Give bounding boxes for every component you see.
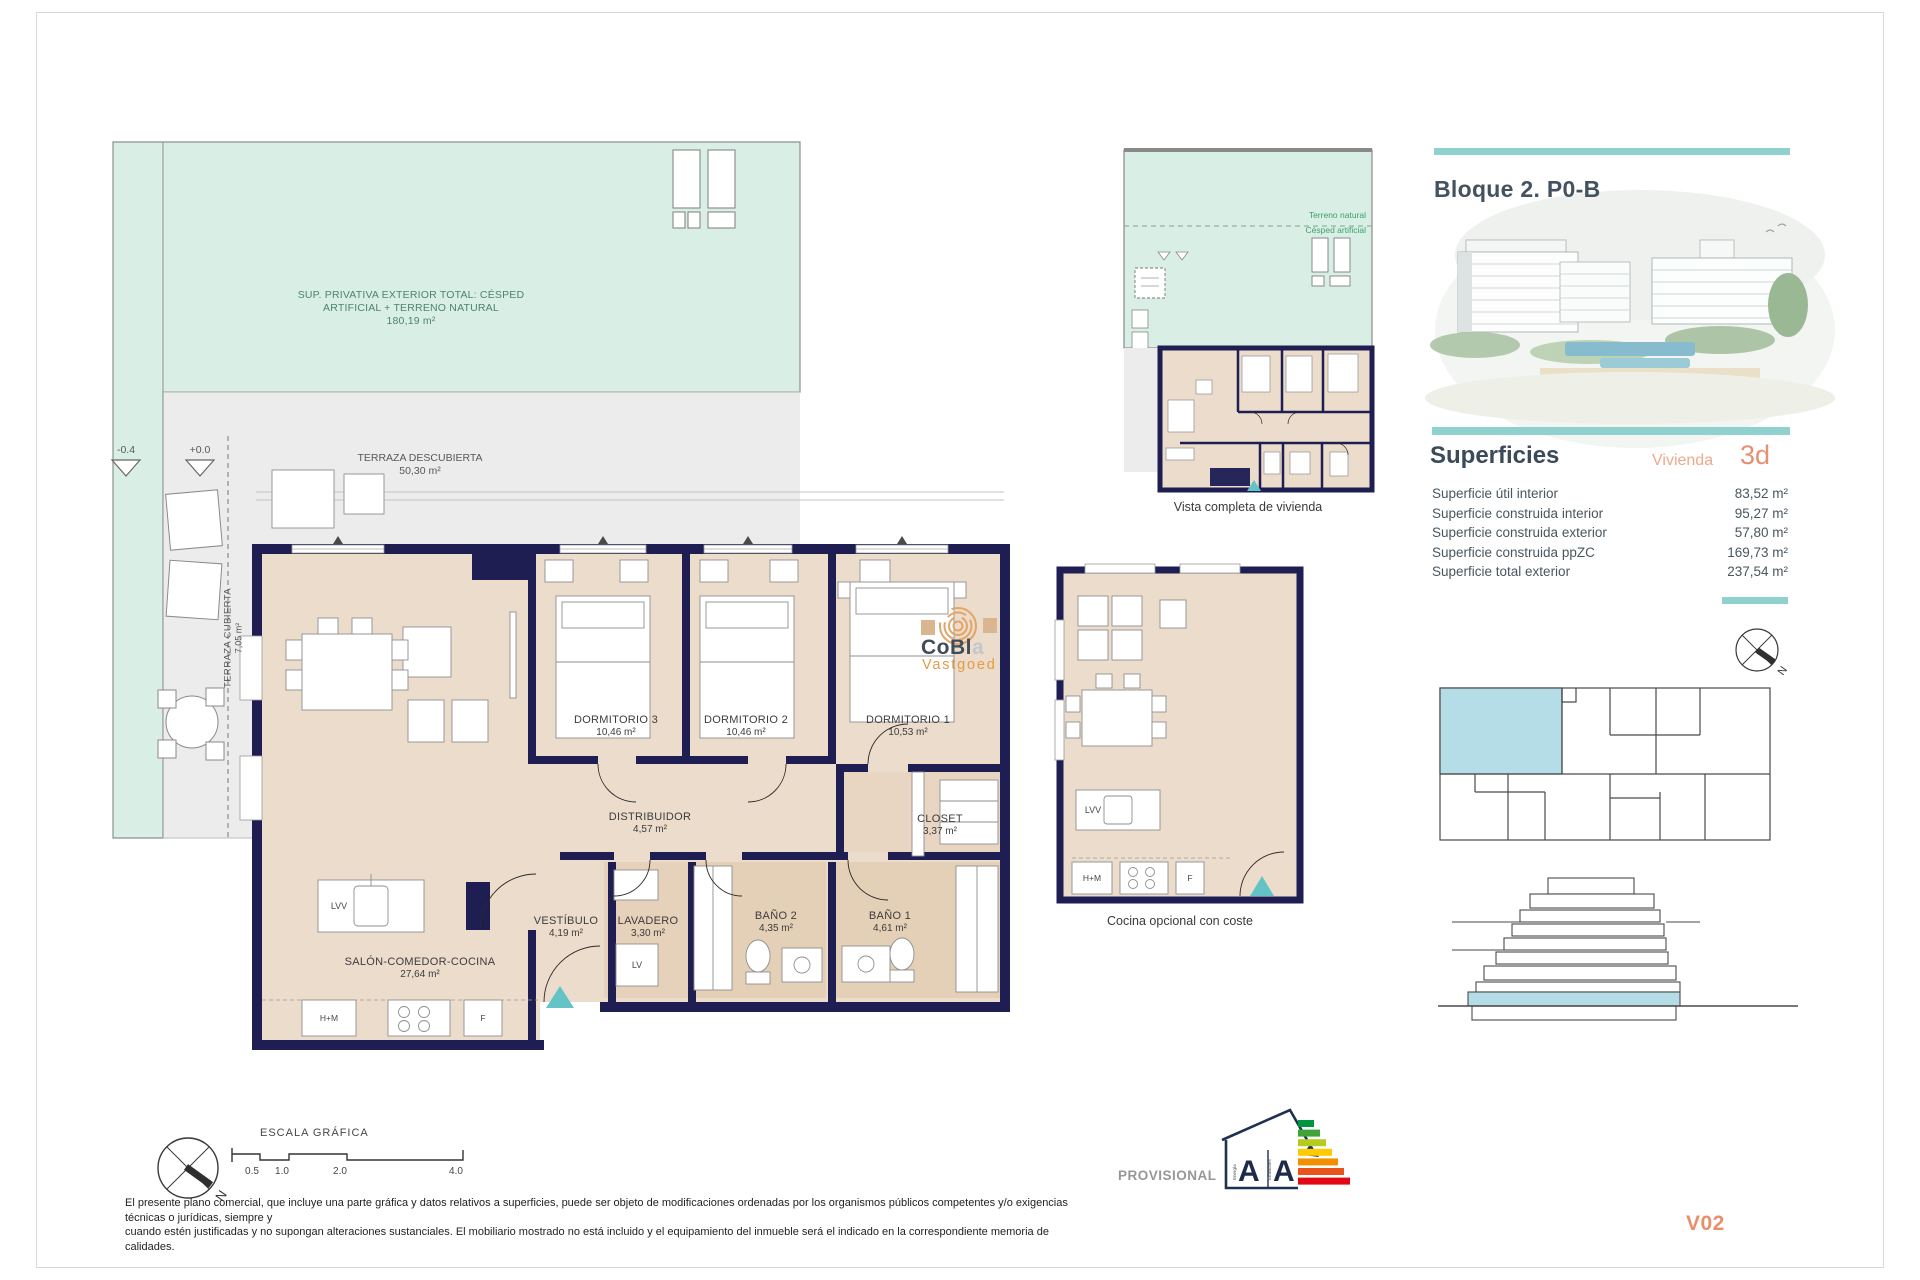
scale-bar-title: ESCALA GRÁFICA <box>260 1127 369 1139</box>
level-marker-low: -0.4 <box>117 444 135 456</box>
scale-tick: 1.0 <box>275 1166 289 1177</box>
watermark-subtitle: Vastgoed <box>922 657 997 673</box>
energy-caption-left: Energía <box>1232 1164 1237 1180</box>
dishwasher-label: LVV <box>331 901 347 911</box>
kitchen-option-plan <box>1055 564 1300 900</box>
room-label-distribuidor: DISTRIBUIDOR4,57 m² <box>609 811 691 835</box>
room-label-banyo-1: BAÑO 14,61 m² <box>869 910 911 934</box>
vivienda-value: 3d <box>1740 440 1770 471</box>
building-render-image <box>1425 190 1835 448</box>
table-row: Superficie construida exterior57,80 m² <box>1432 525 1788 545</box>
scale-tick: 0.5 <box>245 1166 259 1177</box>
superficies-title: Superficies <box>1430 442 1559 470</box>
compass-north-label: N <box>1776 664 1790 677</box>
room-label-closet: CLOSET3,37 m² <box>917 813 963 837</box>
room-label-dormitorio-3: DORMITORIO 310,46 m² <box>574 714 658 738</box>
oven-label-kitchen-plan: H+M <box>1083 873 1101 883</box>
teal-rule-superficies <box>1432 427 1790 435</box>
mini-overview-plan <box>1124 148 1372 491</box>
energy-scale-bars <box>1298 1120 1350 1185</box>
disclaimer-text: El presente plano comercial, que incluye… <box>125 1196 1083 1254</box>
kitchen-plan-caption: Cocina opcional con coste <box>1107 914 1253 928</box>
scale-tick: 4.0 <box>449 1166 463 1177</box>
building-section-diagram <box>1438 878 1798 1020</box>
exterior-surface-note: SUP. PRIVATIVA EXTERIOR TOTAL: CÉSPED AR… <box>298 289 525 328</box>
energy-letter-left: A <box>1238 1155 1260 1188</box>
dishwasher-label-kitchen-plan: LVV <box>1085 805 1101 815</box>
block-title: Bloque 2. P0-B <box>1434 176 1601 203</box>
teal-rule-top <box>1434 148 1790 155</box>
table-row: Superficie útil interior83,52 m² <box>1432 486 1788 506</box>
room-label-lavadero: LAVADERO3,30 m² <box>618 915 679 939</box>
superficies-table: Superficie útil interior83,52 m² Superfi… <box>1432 486 1788 584</box>
compass-icon-panel: N <box>1736 629 1790 678</box>
table-row: Superficie construida interior95,27 m² <box>1432 506 1788 526</box>
teal-rule-small <box>1722 597 1788 604</box>
mini-plan-caption: Vista completa de vivienda <box>1174 500 1322 514</box>
unit-location-diagram <box>1440 688 1770 840</box>
scale-tick: 2.0 <box>333 1166 347 1177</box>
energy-letter-right: A <box>1273 1155 1295 1188</box>
fridge-label-kitchen-plan: F <box>1187 873 1192 883</box>
energy-rating-icon: A A Energía Emisiones <box>1222 1110 1350 1188</box>
terreno-natural-label: Terreno natural <box>1288 210 1366 221</box>
oven-label: H+M <box>320 1013 338 1023</box>
table-row: Superficie construida ppZC169,73 m² <box>1432 545 1788 565</box>
energy-caption-right: Emisiones <box>1267 1158 1272 1180</box>
provisional-label: PROVISIONAL <box>1118 1168 1217 1183</box>
fridge-label: F <box>480 1013 485 1023</box>
scale-bar <box>232 1148 463 1162</box>
level-marker-zero: +0.0 <box>190 444 211 456</box>
vivienda-label: Vivienda <box>1652 452 1713 470</box>
room-label-salon: SALÓN-COMEDOR-COCINA27,64 m² <box>345 956 496 980</box>
cesped-artificial-label: Césped artificial <box>1278 225 1366 236</box>
washer-label: LV <box>632 960 642 970</box>
terraza-cubierta-label: TERRAZA CUBIERTA 7,05 m² <box>223 588 244 688</box>
plan-sheet: N <box>0 0 1920 1280</box>
terraza-descubierta-label: TERRAZA DESCUBIERTA 50,30 m² <box>357 452 482 478</box>
room-label-banyo-2: BAÑO 24,35 m² <box>755 910 797 934</box>
compass-icon-main: N <box>158 1138 230 1204</box>
version-label: V02 <box>1686 1212 1725 1236</box>
room-label-vestibulo: VESTÍBULO4,19 m² <box>534 915 598 939</box>
table-row: Superficie total exterior237,54 m² <box>1432 564 1788 584</box>
room-label-dormitorio-1: DORMITORIO 110,53 m² <box>866 714 950 738</box>
room-label-dormitorio-2: DORMITORIO 210,46 m² <box>704 714 788 738</box>
